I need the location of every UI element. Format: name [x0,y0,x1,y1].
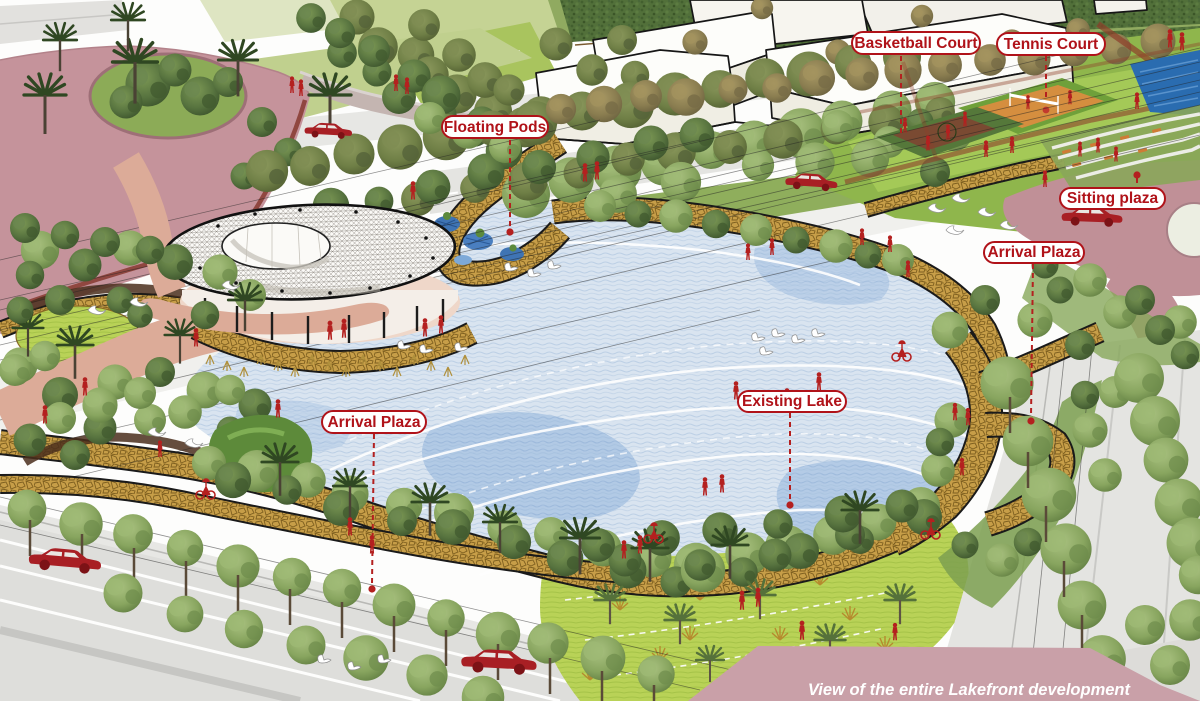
svg-text:Basketball Court: Basketball Court [854,35,977,52]
svg-text:Tennis Court: Tennis Court [1004,36,1098,53]
svg-text:Floating Pods: Floating Pods [444,119,546,136]
svg-text:Sitting plaza: Sitting plaza [1067,190,1159,207]
svg-text:Arrival Plaza: Arrival Plaza [987,244,1080,261]
svg-text:View of the entire Lakefront d: View of the entire Lakefront development [808,681,1132,699]
svg-text:Existing Lake: Existing Lake [742,393,842,410]
svg-text:Arrival Plaza: Arrival Plaza [327,414,420,431]
